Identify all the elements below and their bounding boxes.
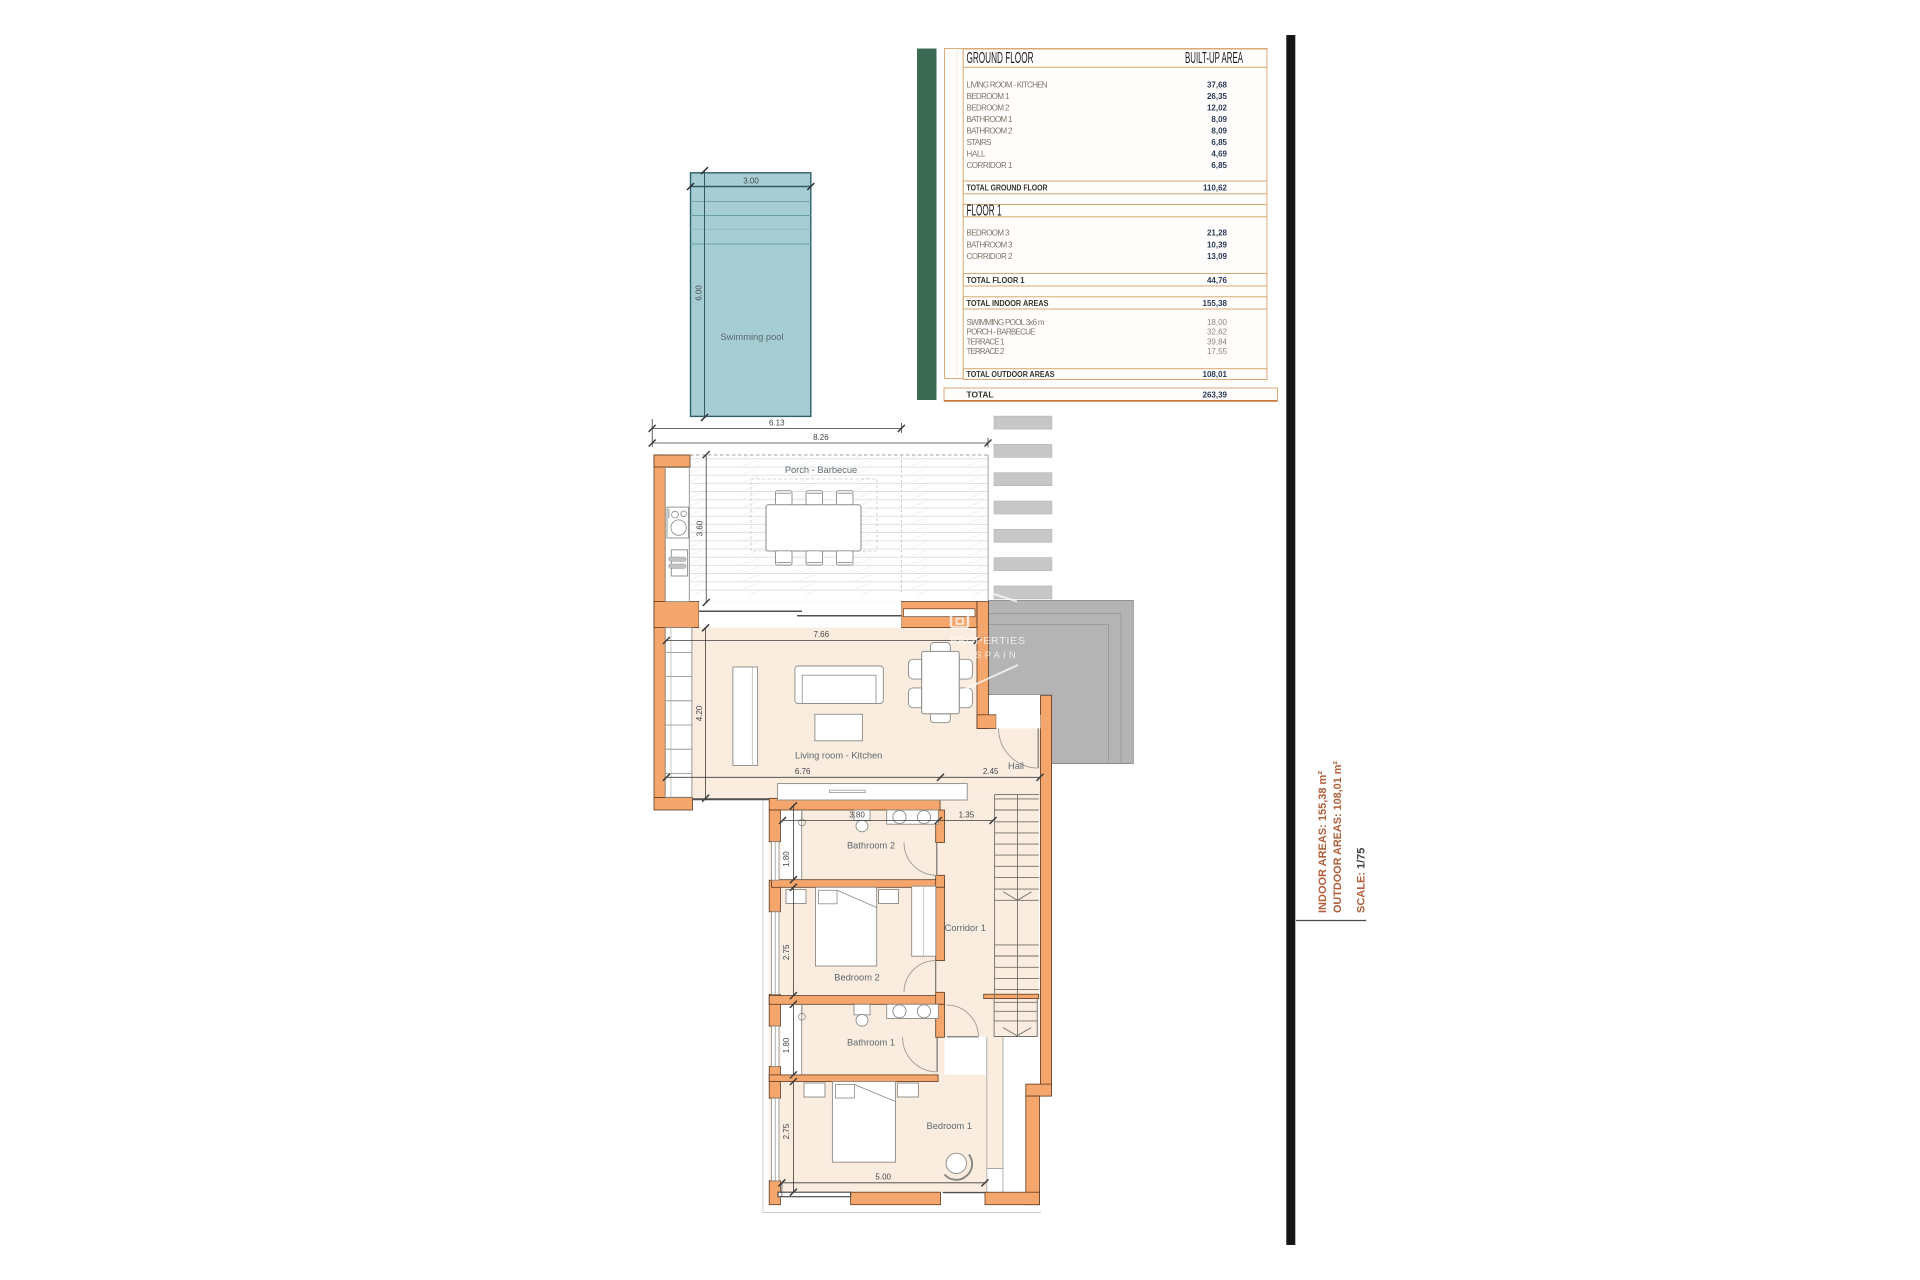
svg-text:6,85: 6,85 — [1211, 161, 1227, 170]
svg-text:21,28: 21,28 — [1207, 229, 1228, 238]
svg-text:Bathroom 2: Bathroom 2 — [847, 841, 895, 851]
svg-text:Hall: Hall — [1008, 761, 1024, 771]
svg-text:BEDROOM 3: BEDROOM 3 — [967, 229, 1011, 238]
svg-text:GROUND FLOOR: GROUND FLOOR — [967, 50, 1034, 67]
svg-text:26,35: 26,35 — [1207, 92, 1228, 101]
svg-text:STAIRS: STAIRS — [967, 138, 992, 147]
svg-text:TOTAL OUTDOOR AREAS: TOTAL OUTDOOR AREAS — [967, 370, 1056, 379]
svg-text:8,09: 8,09 — [1211, 126, 1227, 135]
svg-text:BATHROOM 3: BATHROOM 3 — [967, 240, 1014, 249]
svg-text:2.75: 2.75 — [782, 944, 791, 960]
svg-text:TOTAL GROUND FLOOR: TOTAL GROUND FLOOR — [967, 184, 1048, 193]
svg-text:6.00: 6.00 — [695, 285, 704, 301]
svg-text:TOTAL: TOTAL — [967, 391, 994, 400]
svg-text:3.80: 3.80 — [849, 810, 865, 819]
svg-text:3.60: 3.60 — [695, 520, 704, 536]
svg-text:INDOOR AREAS: 155,38 m²: INDOOR AREAS: 155,38 m² — [1317, 771, 1329, 913]
svg-text:1.35: 1.35 — [959, 810, 975, 819]
svg-text:8,09: 8,09 — [1211, 115, 1227, 124]
svg-text:10,39: 10,39 — [1207, 240, 1228, 249]
svg-text:BATHROOM 1: BATHROOM 1 — [967, 115, 1014, 124]
svg-text:Bedroom 1: Bedroom 1 — [927, 1121, 972, 1131]
svg-text:2.75: 2.75 — [782, 1123, 791, 1139]
svg-text:8.26: 8.26 — [813, 433, 829, 442]
svg-text:39,84: 39,84 — [1207, 337, 1228, 346]
svg-text:263,39: 263,39 — [1203, 391, 1228, 400]
svg-text:BUILT-UP AREA: BUILT-UP AREA — [1185, 50, 1243, 67]
svg-text:CORRIDOR 2: CORRIDOR 2 — [967, 252, 1014, 261]
svg-text:5.00: 5.00 — [875, 1172, 891, 1181]
svg-text:CORRIDOR 1: CORRIDOR 1 — [967, 161, 1014, 170]
svg-text:4,69: 4,69 — [1211, 149, 1227, 158]
svg-text:32,62: 32,62 — [1207, 328, 1228, 337]
svg-text:110,62: 110,62 — [1203, 184, 1228, 193]
svg-text:BATHROOM 2: BATHROOM 2 — [967, 126, 1014, 135]
svg-text:Bathroom 1: Bathroom 1 — [847, 1038, 895, 1048]
svg-text:LIVING ROOM - KITCHEN: LIVING ROOM - KITCHEN — [967, 81, 1048, 90]
svg-text:4.20: 4.20 — [695, 705, 704, 721]
svg-text:17,55: 17,55 — [1207, 347, 1228, 356]
svg-text:7.66: 7.66 — [814, 630, 830, 639]
svg-text:3.00: 3.00 — [743, 177, 759, 186]
svg-text:OUTDOOR AREAS: 108,01 m²: OUTDOOR AREAS: 108,01 m² — [1332, 761, 1344, 913]
svg-text:Bedroom 2: Bedroom 2 — [834, 973, 879, 983]
svg-text:TERRACE 2: TERRACE 2 — [967, 347, 1006, 356]
svg-text:13,09: 13,09 — [1207, 252, 1228, 261]
svg-text:6.13: 6.13 — [769, 418, 785, 427]
svg-text:FLOOR 1: FLOOR 1 — [967, 202, 1002, 219]
svg-text:HALL: HALL — [967, 149, 987, 158]
svg-text:Living room - Kitchen: Living room - Kitchen — [795, 751, 882, 761]
svg-text:TERRACE 1: TERRACE 1 — [967, 337, 1006, 346]
svg-text:TOTAL INDOOR AREAS: TOTAL INDOOR AREAS — [967, 299, 1050, 308]
svg-text:1.80: 1.80 — [782, 851, 791, 867]
svg-text:BEDROOM 2: BEDROOM 2 — [967, 104, 1011, 113]
svg-text:108,01: 108,01 — [1203, 370, 1228, 379]
svg-text:1.80: 1.80 — [782, 1037, 791, 1053]
svg-text:BEDROOM 1: BEDROOM 1 — [967, 92, 1011, 101]
svg-text:12,02: 12,02 — [1207, 104, 1228, 113]
svg-text:18,00: 18,00 — [1207, 318, 1228, 327]
svg-text:SWIMMING POOL 3x6 m: SWIMMING POOL 3x6 m — [967, 318, 1045, 327]
svg-text:6.76: 6.76 — [795, 767, 811, 776]
svg-text:SCALE: 1/75: SCALE: 1/75 — [1356, 848, 1368, 913]
svg-text:155,38: 155,38 — [1203, 299, 1228, 308]
svg-text:TOTAL FLOOR 1: TOTAL FLOOR 1 — [967, 276, 1026, 285]
svg-text:Swimming pool: Swimming pool — [720, 332, 783, 342]
svg-text:SPAIN: SPAIN — [975, 650, 1019, 661]
svg-text:Porch - Barbecue: Porch - Barbecue — [785, 465, 857, 475]
svg-text:6,85: 6,85 — [1211, 138, 1227, 147]
svg-text:37,68: 37,68 — [1207, 81, 1228, 90]
svg-text:44,76: 44,76 — [1207, 276, 1228, 285]
svg-text:2.45: 2.45 — [983, 767, 999, 776]
svg-text:Corridor 1: Corridor 1 — [945, 923, 986, 933]
svg-text:PROPERTIES: PROPERTIES — [950, 635, 1026, 647]
svg-text:PORCH - BARBECUE: PORCH - BARBECUE — [967, 328, 1036, 337]
